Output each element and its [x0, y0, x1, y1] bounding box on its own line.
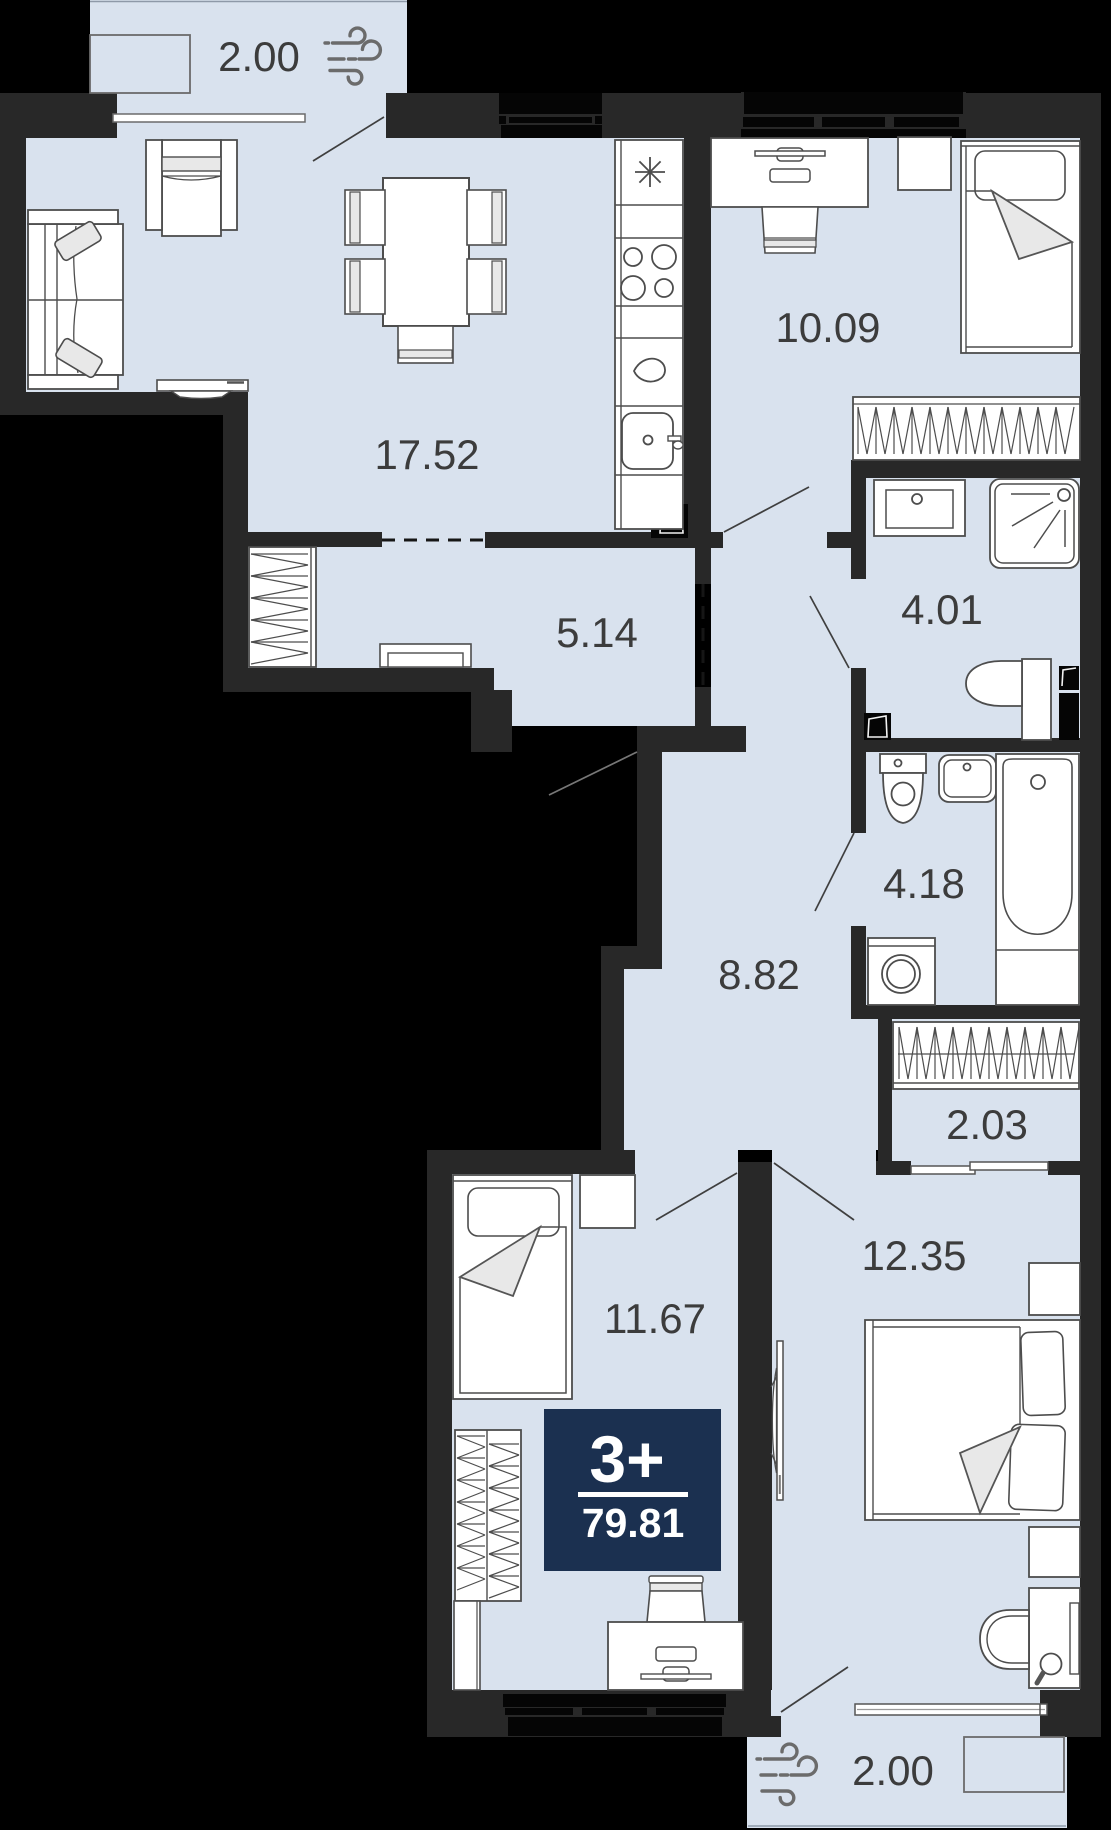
svg-text:11.67: 11.67 — [604, 1295, 706, 1342]
svg-text:17.52: 17.52 — [374, 431, 479, 478]
svg-text:10.09: 10.09 — [775, 304, 880, 351]
svg-text:4.01: 4.01 — [901, 586, 983, 633]
svg-text:8.82: 8.82 — [718, 951, 800, 998]
svg-text:2.00: 2.00 — [852, 1747, 934, 1794]
svg-text:2.03: 2.03 — [946, 1101, 1028, 1148]
svg-text:4.18: 4.18 — [883, 860, 965, 907]
svg-text:79.81: 79.81 — [582, 1500, 685, 1546]
svg-text:12.35: 12.35 — [861, 1232, 966, 1279]
svg-text:5.14: 5.14 — [556, 609, 638, 656]
svg-text:2.00: 2.00 — [218, 33, 300, 80]
svg-text:3+: 3+ — [589, 1422, 664, 1496]
